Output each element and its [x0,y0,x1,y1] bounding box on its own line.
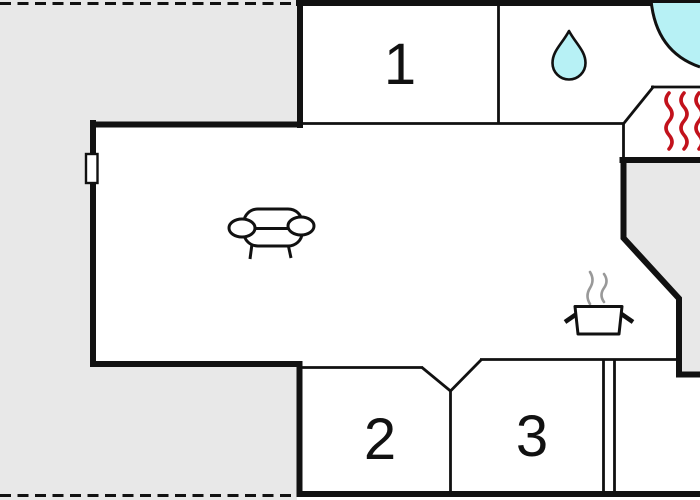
room-2-label: 2 [364,407,396,472]
room-1-label: 1 [384,32,416,97]
plot-area-left [0,120,91,370]
sofa-armrest-left [229,219,255,237]
plot-area-top-left [0,0,298,127]
window-icon [86,154,98,183]
floor-plan-canvas: 1 2 3 [0,0,700,500]
plot-area-bottom-left [0,362,297,500]
room-3-label: 3 [516,404,548,469]
floor-plan-drawing: 1 2 3 [0,0,700,500]
sofa-armrest-right [288,217,314,235]
pot-body [575,307,622,335]
